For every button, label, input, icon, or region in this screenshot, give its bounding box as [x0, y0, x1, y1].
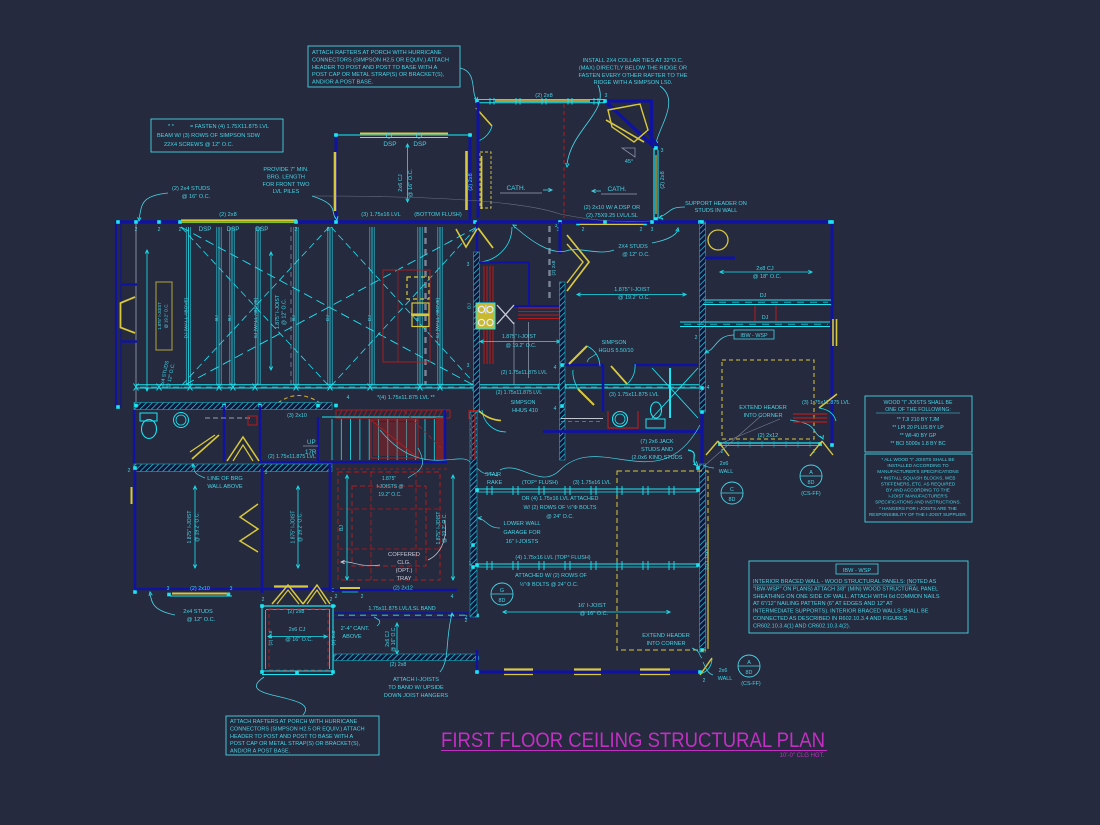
- svg-text:"IBW-WSP" ON PLANS) ATTACH 3/8: "IBW-WSP" ON PLANS) ATTACH 3/8" (MIN) WO…: [753, 586, 938, 592]
- svg-text:ONE OF THE FOLLOWING:: ONE OF THE FOLLOWING:: [885, 407, 951, 413]
- svg-text:3: 3: [230, 586, 233, 592]
- svg-text:* INSTALL SQUASH BLOCKS, WEB: * INSTALL SQUASH BLOCKS, WEB: [881, 475, 956, 480]
- svg-text:(CS-FF): (CS-FF): [801, 491, 821, 497]
- svg-text:CONNECTORS (SIMPSON H2.5 OR EQ: CONNECTORS (SIMPSON H2.5 OR EQUIV.) ATTA…: [230, 726, 365, 732]
- svg-text:2: 2: [128, 468, 131, 474]
- svg-text:DSP: DSP: [227, 226, 240, 233]
- svg-text:HGUS 5.50/10: HGUS 5.50/10: [598, 348, 633, 354]
- svg-text:HEADER TO POST AND POST TO BAS: HEADER TO POST AND POST TO BASE WITH A: [230, 734, 354, 740]
- svg-text:1.75x11.875 LVL/LSL BAND: 1.75x11.875 LVL/LSL BAND: [368, 606, 435, 612]
- svg-text:2x8 CJ: 2x8 CJ: [756, 266, 774, 272]
- svg-text:FASTEN EVERY OTHER RAFTER TO T: FASTEN EVERY OTHER RAFTER TO THE: [579, 73, 688, 79]
- svg-text:@ 16" O.C.: @ 16" O.C.: [391, 626, 397, 651]
- svg-text:DOWN JOIST HANGERS: DOWN JOIST HANGERS: [384, 693, 448, 699]
- svg-text:2'-4" CANT.: 2'-4" CANT.: [341, 626, 370, 632]
- svg-text:STUDS IN WALL: STUDS IN WALL: [695, 208, 738, 214]
- svg-text:8D: 8D: [746, 670, 753, 676]
- svg-text:(2) 2x10: (2) 2x10: [190, 586, 210, 592]
- svg-text:A: A: [809, 470, 813, 476]
- svg-text:TO BAND W/ UPSIDE: TO BAND W/ UPSIDE: [388, 685, 444, 691]
- svg-text:CONNECTED AS DESCRIBED IN R602: CONNECTED AS DESCRIBED IN R602.10.3.4 AN…: [753, 616, 908, 622]
- svg-text:EXTEND HEADER: EXTEND HEADER: [739, 405, 787, 411]
- svg-text:SIMPSON: SIMPSON: [602, 340, 627, 346]
- svg-text:(2) 2x8: (2) 2x8: [268, 630, 274, 645]
- svg-text:HHUS 410: HHUS 410: [512, 408, 538, 414]
- svg-text:OR (4) 1.75x16 LVL ATTACHED: OR (4) 1.75x16 LVL ATTACHED: [522, 496, 599, 502]
- svg-text:2: 2: [262, 597, 265, 603]
- svg-text:INTO CORNER: INTO CORNER: [743, 413, 782, 419]
- svg-text:*(4) 1.75x11.875 LVL **: *(4) 1.75x11.875 LVL **: [377, 395, 436, 401]
- svg-text:** LPI 20 PLUS BY LP: ** LPI 20 PLUS BY LP: [892, 425, 944, 431]
- svg-text:COFFERED: COFFERED: [388, 552, 420, 558]
- svg-text:DSP: DSP: [199, 226, 212, 233]
- svg-text:= FASTEN (4) 1.75X11.875 LVL: = FASTEN (4) 1.75X11.875 LVL: [190, 124, 269, 130]
- svg-text:STAIR: STAIR: [485, 472, 501, 478]
- svg-text:INTERIOR BRACED WALL - WOOD S: INTERIOR BRACED WALL - WOOD STRUCTURAL P…: [753, 579, 937, 585]
- svg-text:STIFFENERS, ETC. AS REQUIRED: STIFFENERS, ETC. AS REQUIRED: [881, 481, 956, 486]
- svg-text:WALL ABOVE: WALL ABOVE: [207, 484, 243, 490]
- svg-text:LINE OF BRG: LINE OF BRG: [207, 476, 242, 482]
- svg-text:LOWER WALL: LOWER WALL: [503, 521, 540, 527]
- svg-text:@ 12" O.C.: @ 12" O.C.: [282, 299, 288, 325]
- svg-text:(3) 1.75x11.875 LVL: (3) 1.75x11.875 LVL: [802, 400, 850, 406]
- svg-text:@ 16" O.C.: @ 16" O.C.: [408, 168, 414, 197]
- svg-text:ATTACH RAFTERS AT PORCH WITH H: ATTACH RAFTERS AT PORCH WITH HURRICANE: [312, 50, 442, 56]
- svg-text:IBW - WSP: IBW - WSP: [843, 568, 872, 574]
- svg-text:UP: UP: [307, 439, 316, 446]
- svg-text:2: 2: [361, 594, 364, 600]
- svg-text:@ 18" O.C.: @ 18" O.C.: [753, 274, 782, 280]
- svg-text:8D: 8D: [729, 497, 736, 503]
- svg-text:(2) 1.75x11.875 LVL: (2) 1.75x11.875 LVL: [496, 390, 542, 396]
- svg-text:INSTALLED ACCORDING TO: INSTALLED ACCORDING TO: [887, 463, 949, 468]
- svg-text:BJ: BJ: [339, 525, 345, 531]
- svg-text:@ 19.2" O.C.: @ 19.2" O.C.: [442, 513, 448, 543]
- svg-text:(2) 2x12: (2) 2x12: [393, 586, 413, 592]
- svg-text:DJ (WALL ABOVE): DJ (WALL ABOVE): [184, 297, 190, 338]
- svg-text:1.875" I-JOIST: 1.875" I-JOIST: [157, 302, 162, 330]
- svg-text:** TJI 210 BY TJM: ** TJI 210 BY TJM: [897, 417, 939, 423]
- svg-text:(BOTTOM FLUSH): (BOTTOM FLUSH): [414, 212, 462, 218]
- svg-text:AND/OR A POST BASE.: AND/OR A POST BASE.: [230, 749, 291, 755]
- svg-text:BJ: BJ: [214, 315, 220, 321]
- svg-text:4: 4: [347, 395, 350, 401]
- svg-text:RIDGE WITH A SIMPSON LS0.: RIDGE WITH A SIMPSON LS0.: [594, 80, 673, 86]
- svg-text:8D: 8D: [499, 598, 506, 604]
- svg-text:2: 2: [582, 227, 585, 233]
- svg-text:(2) 2x8: (2) 2x8: [219, 212, 236, 218]
- svg-text:BJ: BJ: [227, 315, 233, 321]
- svg-text:CATH.: CATH.: [607, 186, 626, 193]
- svg-text:INTO CORNER: INTO CORNER: [646, 641, 685, 647]
- svg-text:1: 1: [469, 561, 472, 567]
- svg-text:C: C: [730, 487, 734, 493]
- svg-text:(2) 2x8: (2) 2x8: [331, 630, 337, 645]
- svg-text:CR602.10.3.4(1) AND CR602.10.3: CR602.10.3.4(1) AND CR602.10.3.4(2).: [753, 623, 851, 629]
- svg-text:I-JOISTS @: I-JOISTS @: [376, 484, 403, 490]
- svg-text:3: 3: [651, 227, 654, 233]
- svg-text:FOR FRONT TWO: FOR FRONT TWO: [262, 182, 310, 188]
- svg-text:(3) 1.75x11.875 LVL: (3) 1.75x11.875 LVL: [609, 392, 659, 398]
- svg-text:3: 3: [605, 93, 608, 99]
- svg-text:2x6: 2x6: [720, 461, 729, 467]
- svg-text:DJ: DJ: [760, 293, 767, 299]
- svg-text:(CS-FF): (CS-FF): [741, 681, 761, 687]
- svg-text:WALL: WALL: [718, 676, 732, 682]
- svg-text:(3) 1.75x16 LVL: (3) 1.75x16 LVL: [361, 212, 400, 218]
- svg-text:2x6 CJ: 2x6 CJ: [289, 627, 306, 633]
- svg-text:(2) 2x8: (2) 2x8: [468, 173, 474, 190]
- svg-text:16' I-JOIST: 16' I-JOIST: [578, 603, 607, 609]
- svg-text:(2) 2x4 STUDS: (2) 2x4 STUDS: [172, 186, 210, 192]
- svg-text:(2) 2x12: (2) 2x12: [758, 433, 779, 439]
- svg-text:DJ: DJ: [367, 314, 373, 320]
- svg-text:1.875" I-JOIST: 1.875" I-JOIST: [614, 287, 650, 293]
- svg-text:STUDS AND: STUDS AND: [641, 447, 673, 453]
- svg-text:@ 19.2" O.C.: @ 19.2" O.C.: [164, 304, 169, 329]
- svg-text:2: 2: [330, 597, 333, 603]
- svg-text:(2) 2x8: (2) 2x8: [660, 171, 666, 188]
- svg-text:@ 19.2" O.C.: @ 19.2" O.C.: [618, 295, 650, 301]
- svg-text:@ 19.2" O.C.: @ 19.2" O.C.: [506, 343, 537, 349]
- svg-text:W/ (2) ROWS OF ½"Φ BOLTS: W/ (2) ROWS OF ½"Φ BOLTS: [524, 504, 597, 511]
- svg-text:(2) 2x8: (2) 2x8: [551, 260, 557, 275]
- svg-text:I-JOIST MANUFACTURER'S: I-JOIST MANUFACTURER'S: [888, 494, 947, 499]
- svg-text:2X4 STUDS: 2X4 STUDS: [618, 244, 648, 250]
- svg-text:MANUFACTURER'S SPECIFICATIONS: MANUFACTURER'S SPECIFICATIONS: [877, 469, 958, 474]
- svg-text:DJ: DJ: [467, 302, 473, 308]
- svg-text:DSP: DSP: [413, 141, 426, 148]
- svg-text:DJ: DJ: [762, 315, 769, 321]
- svg-text:ATTACH RAFTERS AT PORCH WITH H: ATTACH RAFTERS AT PORCH WITH HURRICANE: [230, 719, 358, 725]
- svg-text:* *: * *: [168, 124, 175, 130]
- svg-text:A: A: [747, 660, 751, 666]
- svg-text:@ 16" O.C.: @ 16" O.C.: [182, 194, 211, 200]
- svg-text:(3) 2x10: (3) 2x10: [287, 413, 307, 419]
- svg-text:1.875" I-JOIST: 1.875" I-JOIST: [502, 334, 537, 340]
- svg-text:DSP: DSP: [383, 141, 396, 148]
- svg-text:DJ: DJ: [325, 314, 331, 320]
- svg-text:1.875" I-JOIST: 1.875" I-JOIST: [291, 511, 297, 544]
- svg-text:BJ: BJ: [291, 315, 297, 321]
- svg-text:4: 4: [554, 406, 557, 412]
- svg-text:(2) 2x8: (2) 2x8: [535, 93, 552, 99]
- svg-text:(2) 2x8: (2) 2x8: [390, 662, 407, 668]
- svg-text:CATH.: CATH.: [506, 185, 525, 192]
- svg-text:G: G: [500, 588, 504, 594]
- svg-text:2: 2: [179, 227, 182, 233]
- svg-text:(2) 1.75x11.875 LVL: (2) 1.75x11.875 LVL: [268, 454, 316, 460]
- svg-text:2: 2: [335, 594, 338, 600]
- svg-text:AND/OR A POST BASE.: AND/OR A POST BASE.: [312, 80, 374, 86]
- svg-text:ATTACHED W/ (2) ROWS OF: ATTACHED W/ (2) ROWS OF: [515, 573, 587, 579]
- svg-text:RAKE: RAKE: [487, 480, 503, 486]
- svg-text:POST CAP OR METAL STRAP(S) OR: POST CAP OR METAL STRAP(S) OR BRACKET(S)…: [230, 741, 360, 747]
- svg-text:2x6 CJ: 2x6 CJ: [398, 174, 404, 192]
- svg-text:(2) 2x10 W/ A DSP OR: (2) 2x10 W/ A DSP OR: [584, 205, 640, 211]
- svg-text:½"Φ BOLTS @ 24" O.C.: ½"Φ BOLTS @ 24" O.C.: [520, 581, 578, 588]
- svg-text:(2) 1.75x11.875 LVL: (2) 1.75x11.875 LVL: [501, 370, 547, 376]
- svg-text:BY AND ACCORDING TO THE: BY AND ACCORDING TO THE: [886, 488, 950, 493]
- svg-text:SJ (WALL ABOVE): SJ (WALL ABOVE): [435, 297, 441, 338]
- svg-text:WOOD "I" JOISTS SHALL BE: WOOD "I" JOISTS SHALL BE: [884, 400, 953, 406]
- svg-text:GARAGE FOR: GARAGE FOR: [503, 530, 540, 536]
- svg-text:AT 6"/12" NAILING PATTERN (6": AT 6"/12" NAILING PATTERN (6" AT EDGES A…: [753, 601, 893, 607]
- svg-text:2: 2: [640, 227, 643, 233]
- svg-text:10'-0" CLG HGT.: 10'-0" CLG HGT.: [780, 753, 825, 759]
- svg-text:WALL: WALL: [719, 469, 733, 475]
- svg-text:4: 4: [554, 365, 557, 371]
- svg-text:LVL PILES: LVL PILES: [273, 189, 300, 195]
- svg-text:2: 2: [695, 335, 698, 341]
- svg-text:1.875" I-JOIST: 1.875" I-JOIST: [187, 511, 193, 544]
- svg-text:** BCI 5000s 1.8 BY BC: ** BCI 5000s 1.8 BY BC: [890, 441, 946, 447]
- svg-text:19.2" O.C.: 19.2" O.C.: [378, 492, 401, 498]
- svg-text:EXTEND HEADER: EXTEND HEADER: [642, 633, 690, 639]
- svg-text:(OPT.): (OPT.): [396, 568, 413, 574]
- svg-text:3: 3: [467, 363, 470, 369]
- svg-text:IBW - WSP: IBW - WSP: [740, 333, 768, 339]
- svg-text:PROVIDE 7" MIN.: PROVIDE 7" MIN.: [263, 167, 309, 173]
- svg-text:(3) 1.75x16 LVL: (3) 1.75x16 LVL: [573, 480, 611, 486]
- svg-text:8D: 8D: [808, 480, 815, 486]
- svg-text:ATTACH I-JOISTS: ATTACH I-JOISTS: [393, 677, 439, 683]
- svg-text:SIMPSON: SIMPSON: [511, 400, 536, 406]
- svg-text:** WI-40 BY GP: ** WI-40 BY GP: [900, 433, 937, 439]
- svg-text:ABOVE: ABOVE: [342, 634, 362, 640]
- svg-text:@ 12" O.C.: @ 12" O.C.: [622, 252, 649, 258]
- svg-text:4: 4: [707, 385, 710, 391]
- svg-text:SHEATHING ON ONE SIDE OF WALL.: SHEATHING ON ONE SIDE OF WALL. ATTACH WI…: [753, 594, 940, 600]
- svg-text:HEADER TO POST AND POST TO BAS: HEADER TO POST AND POST TO BASE WITH A: [312, 65, 438, 71]
- svg-text:3: 3: [167, 586, 170, 592]
- svg-text:(2.0x6 KIND STUDS: (2.0x6 KIND STUDS: [632, 455, 683, 461]
- svg-text:16" I-JOISTS: 16" I-JOISTS: [506, 539, 539, 545]
- svg-text:INTERMEDIATE SUPPORTS). INTER: INTERMEDIATE SUPPORTS). INTERIOR BRACED …: [753, 609, 929, 615]
- svg-text:45°: 45°: [625, 159, 633, 165]
- svg-text:22X4 SCREWS @ 12" O.C.: 22X4 SCREWS @ 12" O.C.: [164, 142, 234, 148]
- svg-text:INSTALL 2X4 COLLAR TIES AT 32": INSTALL 2X4 COLLAR TIES AT 32"O.C.: [583, 58, 684, 64]
- svg-text:2: 2: [703, 678, 706, 684]
- svg-text:(7) 2x6 JACK: (7) 2x6 JACK: [640, 439, 674, 445]
- svg-text:2x6: 2x6: [719, 668, 728, 674]
- svg-text:SPECIFICATIONS AND INSTRUCTION: SPECIFICATIONS AND INSTRUCTIONS.: [875, 500, 961, 505]
- svg-text:POST CAP OR METAL STRAP(S) OR: POST CAP OR METAL STRAP(S) OR BRACKET(S)…: [312, 72, 445, 78]
- svg-text:BRG. LENGTH: BRG. LENGTH: [267, 174, 305, 180]
- svg-text:2x4 STUDS: 2x4 STUDS: [183, 609, 213, 615]
- svg-text:(2).75X9.25 LVL/LSL: (2).75X9.25 LVL/LSL: [586, 213, 638, 219]
- svg-text:3: 3: [467, 262, 470, 268]
- svg-text:3: 3: [265, 470, 268, 476]
- svg-text:1.875" I-JOIST: 1.875" I-JOIST: [275, 294, 281, 329]
- svg-text:* HANGERS FOR I-JOISTS ARE THE: * HANGERS FOR I-JOISTS ARE THE: [879, 506, 957, 511]
- svg-text:(2) 1.75x9.25: (2) 1.75x9.25: [704, 542, 709, 570]
- svg-text:@ 12" O.C.: @ 12" O.C.: [187, 617, 216, 623]
- svg-text:3: 3: [661, 148, 664, 154]
- svg-text:SUPPORT HEADER ON: SUPPORT HEADER ON: [685, 201, 747, 207]
- svg-text:DSP: DSP: [256, 226, 269, 233]
- svg-text:2: 2: [465, 615, 468, 621]
- svg-text:@ 24" O.C.: @ 24" O.C.: [546, 514, 573, 520]
- svg-text:BEAM W/ (3) ROWS OF SIMPSON SD: BEAM W/ (3) ROWS OF SIMPSON SDW: [157, 133, 261, 139]
- svg-text:(TOP° FLUSH): (TOP° FLUSH): [522, 480, 558, 486]
- svg-text:CONNECTORS (SIMPSON H2.5 OR EQ: CONNECTORS (SIMPSON H2.5 OR EQUIV.) ATTA…: [312, 57, 449, 63]
- svg-text:FIRST FLOOR CEILING STRUCTURAL: FIRST FLOOR CEILING STRUCTURAL PLAN: [441, 729, 825, 752]
- svg-text:@ 16" O.C.: @ 16" O.C.: [285, 637, 312, 643]
- svg-text:(2) 2x8: (2) 2x8: [288, 609, 305, 615]
- svg-text:* ALL WOOD "I" JOISTS SHALL BE: * ALL WOOD "I" JOISTS SHALL BE: [881, 457, 954, 462]
- svg-text:2: 2: [158, 227, 161, 233]
- svg-text:1.875": 1.875": [382, 476, 397, 482]
- svg-text:CLG.: CLG.: [397, 560, 411, 566]
- svg-text:TRAY: TRAY: [396, 576, 411, 582]
- svg-text:RESPONSIBILITY OF THE I-JOIST: RESPONSIBILITY OF THE I-JOIST SUPPLIER.: [869, 512, 967, 517]
- svg-text:4: 4: [451, 594, 454, 600]
- svg-text:(MAX) DIRECTLY BELOW THE RIDGE: (MAX) DIRECTLY BELOW THE RIDGE OR: [579, 65, 687, 71]
- svg-text:(4) 1.75x16 LVL (TOP° FLUSH): (4) 1.75x16 LVL (TOP° FLUSH): [515, 555, 590, 561]
